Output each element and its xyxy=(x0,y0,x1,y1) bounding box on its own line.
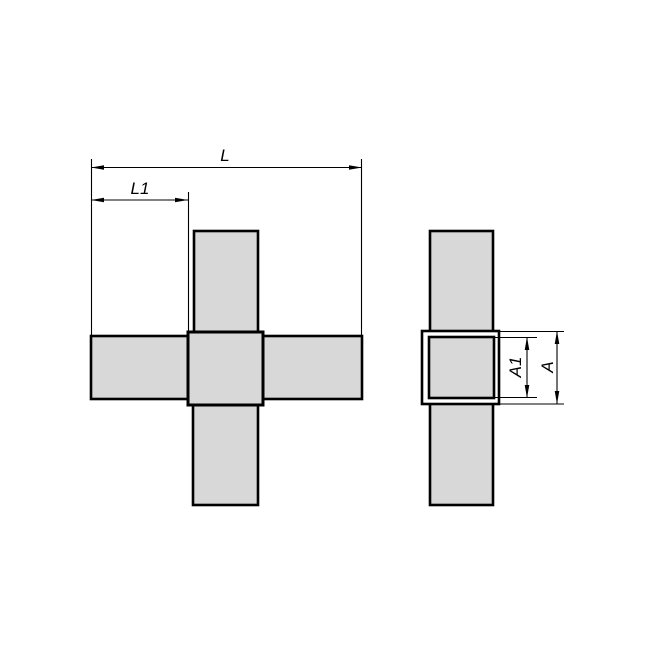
drawing-svg: L L1 A1 A xyxy=(0,0,654,654)
front-view xyxy=(91,231,362,505)
technical-drawing-canvas: L L1 A1 A xyxy=(0,0,654,654)
dimension-A1-label: A1 xyxy=(506,357,525,379)
dimension-L1: L1 xyxy=(91,179,189,332)
side-view xyxy=(422,231,499,505)
dimension-L-arrow-right xyxy=(349,165,362,170)
front-bottom-tube xyxy=(193,403,258,505)
dimension-L1-label: L1 xyxy=(131,179,150,198)
dimension-L1-arrow-left xyxy=(91,198,104,203)
dimension-A1: A1 xyxy=(495,337,537,398)
front-top-tube xyxy=(194,231,258,334)
dimension-A1-arrow-bottom xyxy=(525,385,530,398)
dimension-A-arrow-top xyxy=(555,331,560,344)
front-left-tube xyxy=(91,336,190,399)
dimension-A-arrow-bottom xyxy=(555,391,560,404)
dimension-A1-arrow-top xyxy=(525,337,530,350)
dimension-L-label: L xyxy=(220,146,229,165)
front-right-tube xyxy=(261,336,362,399)
front-center-hub xyxy=(188,332,263,405)
dimension-A-label: A xyxy=(538,361,557,373)
dimension-L-arrow-left xyxy=(91,165,104,170)
dimension-L1-arrow-right xyxy=(175,198,188,203)
side-hub-inner-square xyxy=(429,337,494,398)
